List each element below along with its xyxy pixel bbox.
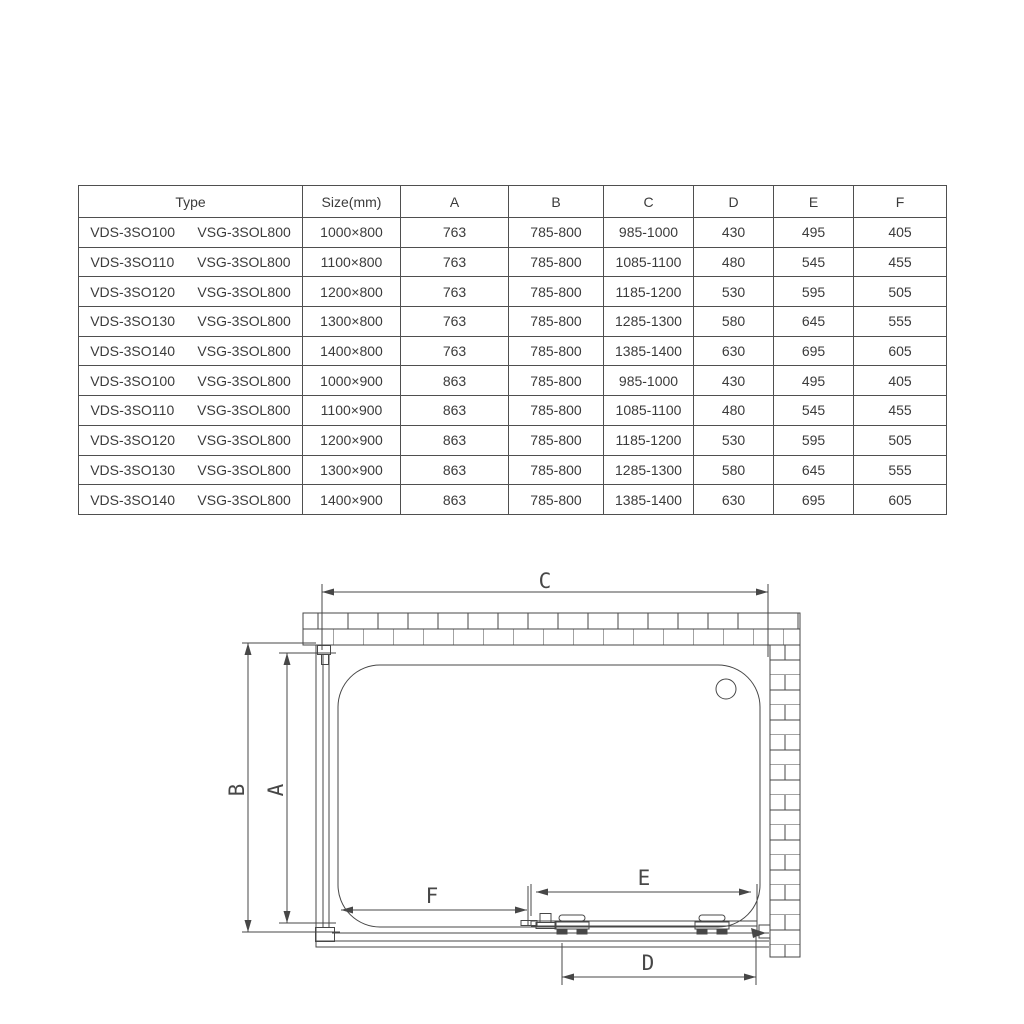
dimension-label-C: C xyxy=(539,569,552,593)
fixed-side-panel xyxy=(316,646,335,942)
shower-tray xyxy=(338,665,760,927)
sliding-door xyxy=(521,914,770,939)
dimension-A: A xyxy=(264,653,336,923)
drain-circle xyxy=(716,679,736,699)
dimension-D: D xyxy=(562,937,756,985)
shower-enclosure-drawing: C B A F E D xyxy=(0,0,1024,1024)
dimension-label-F: F xyxy=(426,884,439,908)
door-roller xyxy=(555,915,589,934)
dimension-label-B: B xyxy=(225,784,249,797)
enclosure-boundary xyxy=(316,645,769,947)
right-brick-wall xyxy=(770,645,800,957)
dimension-label-D: D xyxy=(642,951,655,975)
dimension-label-E: E xyxy=(638,866,651,890)
page: TypeSize(mm)ABCDEF VDS-3SO100VSG-3SOL800… xyxy=(0,0,1024,1024)
door-roller xyxy=(695,915,729,934)
dimension-label-A: A xyxy=(264,783,288,796)
top-brick-wall xyxy=(303,613,800,645)
dimension-F: F xyxy=(341,884,528,925)
